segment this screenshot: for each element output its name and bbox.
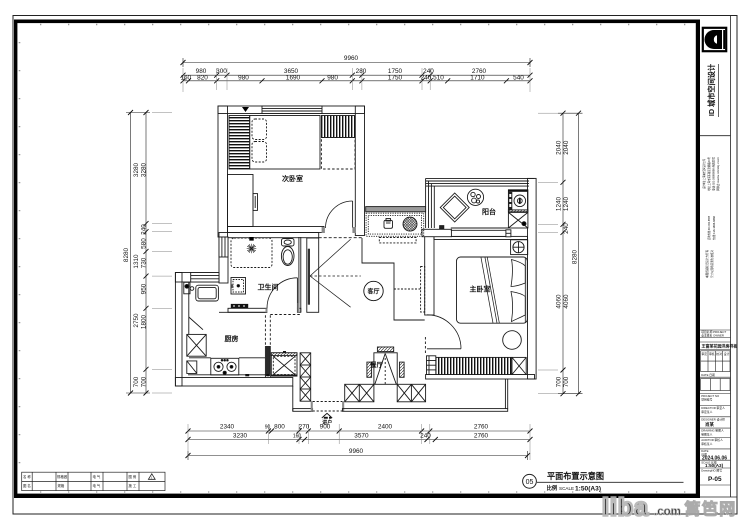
svg-text:540: 540 [513, 74, 524, 81]
svg-text:名 称: 名 称 [23, 474, 31, 479]
svg-text:700: 700 [555, 376, 562, 387]
svg-text:800: 800 [274, 424, 285, 431]
svg-text:尺寸以现场实测为准核对: 尺寸以现场实测为准核对 [709, 250, 714, 278]
svg-text:300: 300 [216, 68, 227, 75]
svg-text:电 气: 电 气 [93, 483, 101, 488]
svg-text:1800: 1800 [140, 314, 147, 329]
svg-text:设计: 设计 [724, 352, 730, 356]
svg-text:730: 730 [140, 257, 147, 268]
svg-text:1:50(A3): 1:50(A3) [705, 463, 724, 468]
svg-text:2340: 2340 [220, 424, 235, 431]
svg-text:网址:www.idcskj.com: 网址:www.idcskj.com [715, 156, 720, 191]
svg-text:05: 05 [526, 479, 534, 486]
svg-text:设计单位:上海城市空间设计公司: 设计单位:上海城市空间设计公司 [701, 159, 706, 189]
svg-text:电 气: 电 气 [93, 474, 101, 479]
svg-text:2040: 2040 [563, 140, 570, 155]
svg-text:3230: 3230 [233, 432, 248, 439]
svg-text:本图纸版权归设计方所有: 本图纸版权归设计方所有 [704, 250, 709, 278]
svg-text:580: 580 [140, 238, 147, 249]
svg-text:280: 280 [356, 68, 367, 75]
svg-text:160: 160 [293, 433, 302, 439]
svg-text:规格做: 规格做 [57, 474, 68, 479]
svg-text:1:50(A3): 1:50(A3) [575, 486, 601, 493]
svg-text:3280: 3280 [133, 162, 140, 177]
svg-text:DrawingNO 图号: DrawingNO 图号 [701, 469, 722, 473]
svg-text:平面布置示意图: 平面布置示意图 [547, 470, 604, 481]
svg-text:客厅: 客厅 [366, 288, 379, 296]
svg-text:主卧室: 主卧室 [470, 285, 491, 294]
svg-text:820: 820 [197, 74, 208, 81]
svg-text:肖某: 肖某 [705, 421, 714, 428]
svg-text:DATE 日期: DATE 日期 [701, 373, 715, 377]
svg-text:审核某人: 审核某人 [701, 442, 712, 446]
svg-text:1240: 1240 [563, 196, 570, 211]
svg-text:咨询热线:400-820-8888: 咨询热线:400-820-8888 [706, 216, 711, 240]
svg-text:9960: 9960 [349, 448, 364, 455]
svg-text:审定: 审定 [702, 352, 708, 356]
svg-text:90: 90 [265, 425, 271, 431]
svg-text:阳台: 阳台 [482, 207, 496, 216]
svg-text:规格: 规格 [58, 483, 65, 488]
svg-text:1240: 1240 [555, 196, 562, 211]
svg-text:8280: 8280 [571, 249, 578, 264]
svg-text:比例: 比例 [547, 484, 558, 492]
svg-text:审定某人: 审定某人 [701, 410, 712, 414]
svg-text:2400: 2400 [378, 424, 393, 431]
svg-text:1690: 1690 [286, 74, 301, 81]
svg-text:700: 700 [140, 376, 147, 387]
svg-text:电话:021-58888888 传真同号: 电话:021-58888888 传真同号 [711, 157, 716, 191]
svg-text:240: 240 [563, 223, 570, 234]
svg-text:制图某人: 制图某人 [701, 433, 712, 437]
svg-text:160: 160 [180, 74, 191, 81]
svg-text:2750: 2750 [133, 313, 140, 328]
svg-text:4060: 4060 [563, 294, 570, 309]
svg-text:篱笆网: 篱笆网 [685, 500, 737, 519]
svg-text:510: 510 [433, 74, 444, 81]
svg-text:950: 950 [140, 283, 147, 294]
svg-text:1710: 1710 [470, 74, 485, 81]
svg-text:1750: 1750 [388, 74, 403, 81]
svg-text:700: 700 [563, 376, 570, 387]
svg-text:施 工: 施 工 [129, 483, 137, 488]
svg-text:9960: 9960 [344, 55, 359, 62]
svg-text:240: 240 [420, 432, 431, 439]
svg-text:980: 980 [327, 74, 338, 81]
svg-text:热线:138-1888-8888: 热线:138-1888-8888 [711, 216, 716, 240]
svg-text:4060: 4060 [555, 294, 562, 309]
svg-text:餐厅: 餐厅 [370, 360, 383, 369]
svg-text:P-05: P-05 [708, 476, 722, 483]
svg-text:校对: 校对 [716, 352, 722, 356]
svg-text:900: 900 [320, 424, 331, 431]
svg-text:业主姓名 OWNER: 业主姓名 OWNER [701, 334, 724, 338]
svg-text:2040: 2040 [555, 140, 562, 155]
svg-text:liba: liba [602, 494, 649, 522]
svg-text:图 名: 图 名 [23, 483, 31, 488]
svg-text:!: ! [151, 476, 152, 480]
svg-text:1310: 1310 [133, 254, 140, 269]
svg-text:厨房: 厨房 [225, 334, 239, 343]
svg-text:地址:上海市浦东新区张杨路XX号: 地址:上海市浦东新区张杨路XX号 [706, 157, 711, 191]
svg-text:3570: 3570 [354, 432, 369, 439]
svg-text:SCALE: SCALE [559, 486, 574, 491]
svg-text:980: 980 [238, 74, 249, 81]
svg-text:王富某花园洋房样板: 王富某花园洋房样板 [702, 343, 739, 349]
svg-text:次卧室: 次卧室 [282, 174, 303, 183]
svg-text:700: 700 [133, 376, 140, 387]
svg-text:.com: .com [654, 506, 681, 518]
svg-text:8280: 8280 [123, 247, 130, 262]
svg-text:2760: 2760 [474, 424, 489, 431]
svg-text:审核: 审核 [709, 352, 715, 356]
svg-text:DESIGNER 设计师: DESIGNER 设计师 [701, 418, 725, 422]
svg-text:图 例: 图 例 [129, 474, 137, 479]
svg-text:240: 240 [140, 224, 147, 235]
svg-text:270: 270 [299, 424, 310, 431]
svg-text:ID 城市空间设计: ID 城市空间设计 [707, 63, 716, 116]
svg-text:240: 240 [421, 74, 432, 81]
svg-text:2760: 2760 [474, 432, 489, 439]
svg-text:卫生间: 卫生间 [258, 283, 279, 292]
svg-text:项目编号: 项目编号 [701, 398, 712, 402]
svg-text:3280: 3280 [140, 162, 147, 177]
